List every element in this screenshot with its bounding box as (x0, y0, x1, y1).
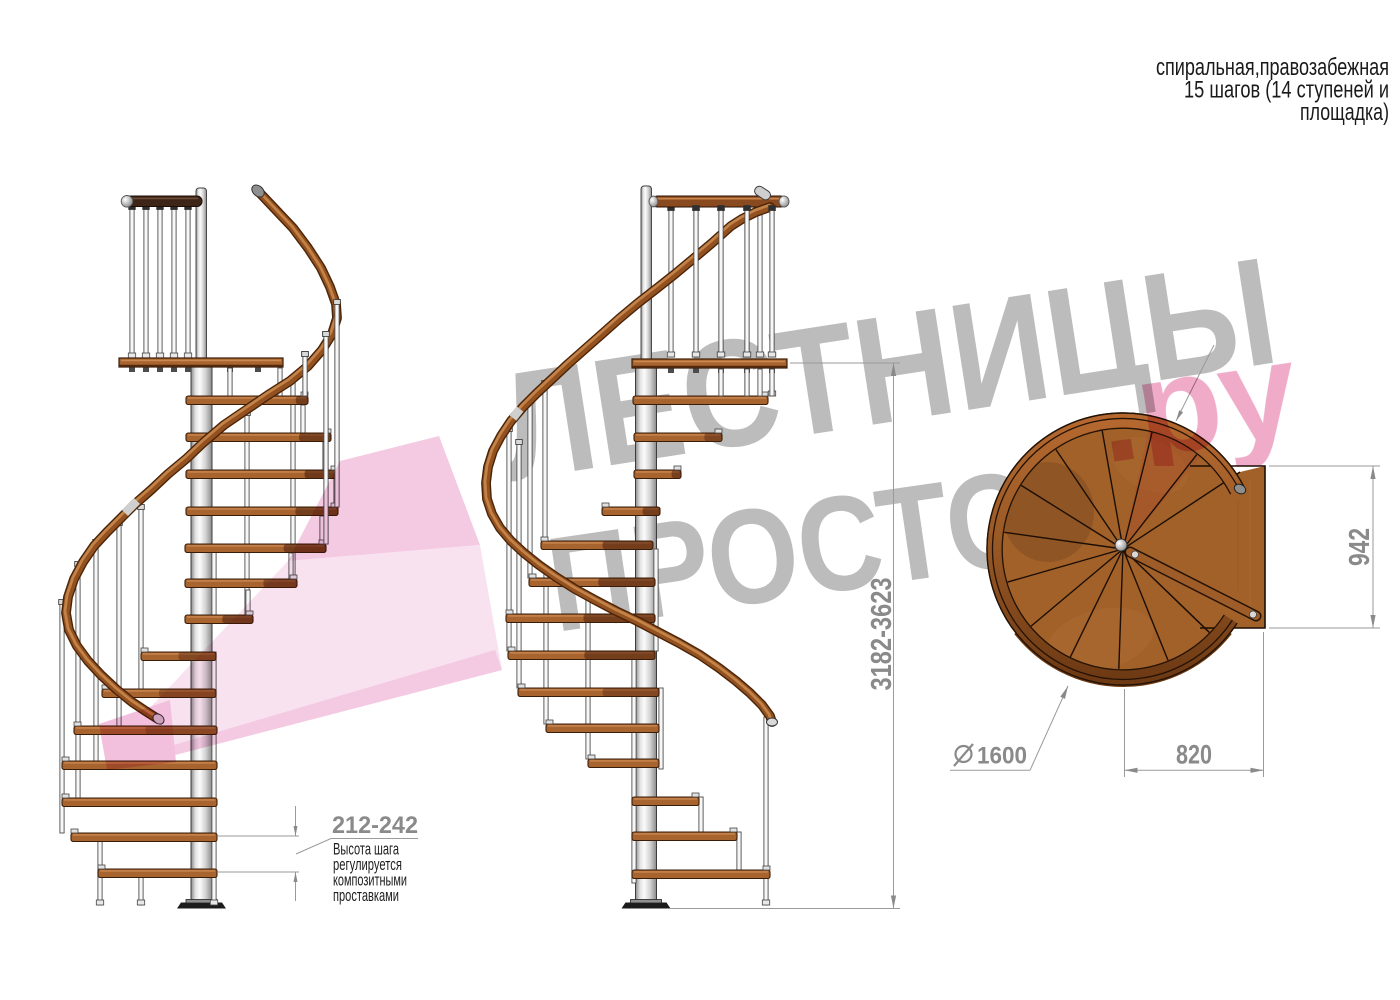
svg-text:.ру: .ру (1087, 312, 1307, 492)
svg-text:820: 820 (1176, 740, 1212, 770)
svg-text:площадка): площадка) (1300, 99, 1389, 126)
svg-text:942: 942 (1344, 528, 1376, 566)
svg-text:1600: 1600 (977, 743, 1027, 770)
svg-text:3182-3623: 3182-3623 (866, 578, 898, 691)
svg-text:212-242: 212-242 (332, 812, 418, 839)
svg-text:проставками: проставками (333, 887, 399, 905)
